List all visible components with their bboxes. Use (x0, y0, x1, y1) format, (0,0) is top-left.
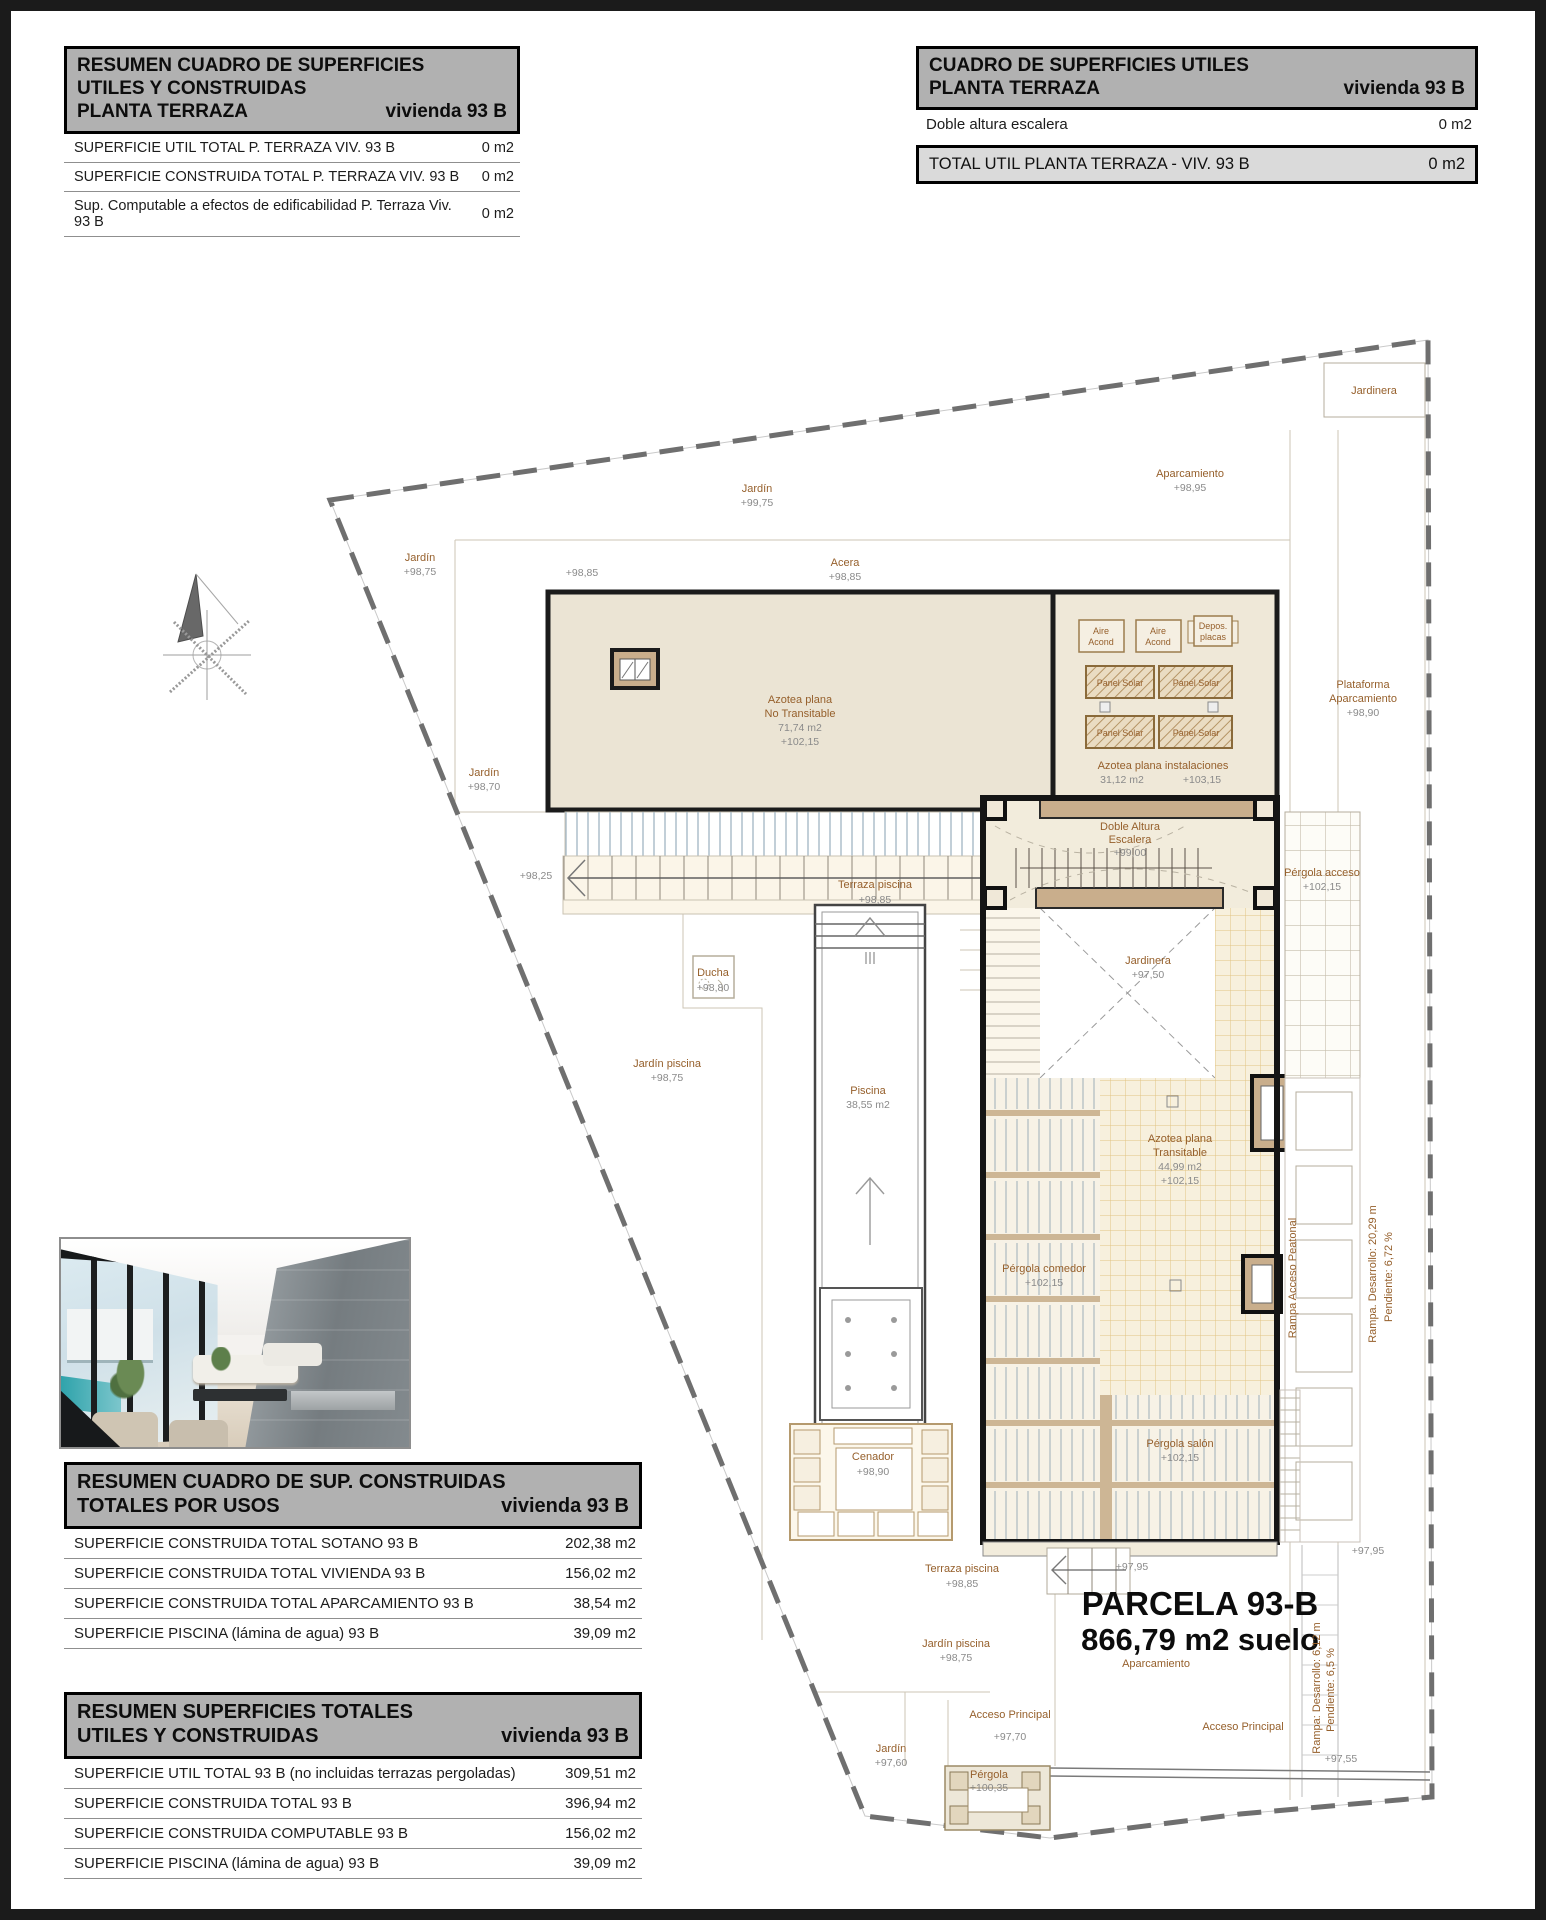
label-depos-placas: Depos. (1199, 621, 1228, 631)
north-compass-icon (163, 574, 251, 700)
label-level: +97,95 (1352, 1545, 1385, 1557)
table-resumen-construidas-usos: RESUMEN CUADRO DE SUP. CONSTRUIDAS TOTAL… (64, 1462, 642, 1649)
label-acceso-principal: Acceso Principal (969, 1709, 1050, 1721)
svg-text:38,55 m2: 38,55 m2 (846, 1099, 890, 1111)
svg-text:+102,15: +102,15 (1025, 1277, 1063, 1289)
svg-text:Acond: Acond (1088, 637, 1114, 647)
label-jardin-top: Jardín (742, 483, 773, 495)
label-ducha: Ducha (697, 967, 730, 979)
table-row: SUPERFICIE CONSTRUIDA TOTAL VIVIENDA 93 … (64, 1559, 642, 1589)
svg-text:Aparcamiento: Aparcamiento (1329, 693, 1397, 705)
table-total-row: TOTAL UTIL PLANTA TERRAZA - VIV. 93 B 0 … (916, 145, 1478, 184)
table-header: RESUMEN SUPERFICIES TOTALES UTILES Y CON… (64, 1692, 642, 1759)
table-title: RESUMEN CUADRO DE SUP. CONSTRUIDAS (77, 1470, 629, 1494)
interior-render-image (59, 1237, 411, 1449)
dining-pergola (983, 1078, 1100, 1542)
table-row: Doble altura escalera 0 m2 (916, 110, 1478, 139)
label-aparcamiento-top: Aparcamiento (1156, 468, 1224, 480)
label-pergola-acceso: Pérgola acceso (1284, 867, 1360, 879)
table-row: SUPERFICIE CONSTRUIDA TOTAL 93 B 396,94 … (64, 1789, 642, 1819)
label-level: +98,85 (566, 567, 599, 579)
label-jardinera-top: Jardinera (1351, 385, 1398, 397)
label-piscina: Piscina (850, 1085, 886, 1097)
label-azotea-transitable: Azotea plana (1148, 1133, 1213, 1145)
label-terraza-piscina: Terraza piscina (838, 879, 913, 891)
svg-text:+97,50: +97,50 (1132, 969, 1165, 981)
table-header: CUADRO DE SUPERFICIES UTILES PLANTA TERR… (916, 46, 1478, 110)
svg-text:44,99 m2: 44,99 m2 (1158, 1161, 1202, 1173)
label-jardin-bottom: Jardín (876, 1743, 907, 1755)
svg-text:+98,75: +98,75 (940, 1652, 973, 1664)
label-rampa-coches: Rampa. Desarrollo: 20,29 m (1367, 1205, 1379, 1343)
svg-text:71,74 m2: 71,74 m2 (778, 722, 822, 734)
roof-edge-pergola (563, 812, 1032, 914)
label-aparcamiento-bottom: Aparcamiento (1122, 1658, 1190, 1670)
label-azotea-no-transitable: Azotea plana (768, 694, 833, 706)
label-panel-solar: Panel Solar (1173, 678, 1220, 688)
svg-text:Escalera: Escalera (1109, 834, 1153, 846)
drawing-sheet: Jardín +99,75 Jardín +98,75 Acera +98,85… (0, 0, 1546, 1920)
label-acera: Acera (831, 557, 861, 569)
label-jardin-left: Jardín (405, 552, 436, 564)
svg-text:31,12 m2: 31,12 m2 (1100, 774, 1144, 786)
render-plant (110, 1360, 152, 1406)
spa-jacuzzi (820, 1288, 922, 1420)
label-azotea-instalaciones: Azotea plana instalaciones (1098, 760, 1229, 772)
table-title: RESUMEN CUADRO DE SUPERFICIES (77, 54, 507, 77)
svg-text:+97,70: +97,70 (994, 1731, 1027, 1743)
svg-text:+98,90: +98,90 (1347, 707, 1380, 719)
svg-text:+98,80: +98,80 (697, 982, 730, 994)
label-jardin-piscina-bottom: Jardín piscina (922, 1638, 991, 1650)
label-cenador: Cenador (852, 1451, 895, 1463)
svg-text:Pendiente: 6,72 %: Pendiente: 6,72 % (1383, 1232, 1395, 1322)
svg-text:No Transitable: No Transitable (765, 708, 836, 720)
table-row: SUPERFICIE UTIL TOTAL 93 B (no incluidas… (64, 1759, 642, 1789)
air-conditioning-unit (1079, 620, 1124, 652)
dwelling-id: vivienda 93 B (386, 100, 507, 123)
table-row: Sup. Computable a efectos de edificabili… (64, 192, 520, 237)
label-level: +97,55 (1325, 1753, 1358, 1765)
label-panel-solar: Panel Solar (1097, 678, 1144, 688)
svg-text:+98,75: +98,75 (404, 566, 437, 578)
render-coffee-table (193, 1389, 287, 1401)
svg-text:+98,90: +98,90 (857, 1466, 890, 1478)
table-title: CUADRO DE SUPERFICIES UTILES (929, 54, 1465, 77)
access-pergola-grid (1285, 812, 1360, 1078)
table-row: SUPERFICIE CONSTRUIDA TOTAL SOTANO 93 B … (64, 1529, 642, 1559)
svg-text:+102,15: +102,15 (1161, 1452, 1199, 1464)
svg-text:+99,00: +99,00 (1114, 847, 1147, 859)
dwelling-id: vivienda 93 B (501, 1724, 629, 1748)
table-resumen-superficies-totales: RESUMEN SUPERFICIES TOTALES UTILES Y CON… (64, 1692, 642, 1879)
air-conditioning-unit (1136, 620, 1181, 652)
render-plant (207, 1347, 235, 1376)
table-row: SUPERFICIE PISCINA (lámina de agua) 93 B… (64, 1619, 642, 1649)
living-room-pergola (1100, 1395, 1277, 1542)
svg-text:+98,95: +98,95 (1174, 482, 1207, 494)
label-acceso-principal: Acceso Principal (1202, 1721, 1283, 1733)
label-doble-altura: Doble Altura (1100, 821, 1161, 833)
render-chair (169, 1420, 228, 1447)
table-title: RESUMEN SUPERFICIES TOTALES (77, 1700, 629, 1724)
table-cuadro-superficies-utiles: CUADRO DE SUPERFICIES UTILES PLANTA TERR… (916, 46, 1478, 184)
svg-text:+99,75: +99,75 (741, 497, 774, 509)
table-resumen-superficies-terraza: RESUMEN CUADRO DE SUPERFICIES UTILES Y C… (64, 46, 520, 237)
render-sofa (263, 1343, 322, 1366)
label-plataforma: Plataforma (1336, 679, 1390, 691)
gazebo-cenador (790, 1424, 952, 1540)
label-aire-acond: Aire (1093, 626, 1109, 636)
svg-text:+103,15: +103,15 (1183, 774, 1221, 786)
label-rampa-acceso: Rampa: Desarrollo: 6,12 m (1311, 1622, 1323, 1753)
label-level: +98,25 (520, 870, 553, 882)
dwelling-id: vivienda 93 B (1344, 77, 1465, 100)
label-parcela-title: PARCELA 93-B (1082, 1585, 1319, 1622)
label-rampa-peatonal: Rampa Acceso Peatonal (1287, 1218, 1299, 1338)
label-aire-acond: Aire (1150, 626, 1166, 636)
table-row: SUPERFICIE PISCINA (lámina de agua) 93 B… (64, 1849, 642, 1879)
label-pergola-comedor: Pérgola comedor (1002, 1263, 1086, 1275)
svg-text:Pendiente: 6,5 %: Pendiente: 6,5 % (1325, 1648, 1337, 1732)
svg-text:+97,60: +97,60 (875, 1757, 908, 1769)
label-panel-solar: Panel Solar (1173, 728, 1220, 738)
svg-text:placas: placas (1200, 632, 1227, 642)
svg-text:+98,85: +98,85 (946, 1578, 979, 1590)
label-level: +97,95 (1116, 1561, 1149, 1573)
dwelling-id: vivienda 93 B (501, 1494, 629, 1518)
swimming-pool (815, 905, 925, 1442)
label-terraza-piscina-bottom: Terraza piscina (925, 1563, 1000, 1575)
label-jardinera-mid: Jardinera (1125, 955, 1172, 967)
label-pergola-salon: Pérgola salón (1146, 1438, 1213, 1450)
label-jardin-piscina: Jardín piscina (633, 1058, 702, 1070)
table-row: SUPERFICIE UTIL TOTAL P. TERRAZA VIV. 93… (64, 134, 520, 163)
render-fireplace-ledge (291, 1391, 395, 1410)
table-header: RESUMEN CUADRO DE SUP. CONSTRUIDAS TOTAL… (64, 1462, 642, 1529)
label-panel-solar: Panel Solar (1097, 728, 1144, 738)
table-row: SUPERFICIE CONSTRUIDA COMPUTABLE 93 B 15… (64, 1819, 642, 1849)
table-row: SUPERFICIE CONSTRUIDA TOTAL P. TERRAZA V… (64, 163, 520, 192)
svg-text:+98,85: +98,85 (829, 571, 862, 583)
svg-text:Transitable: Transitable (1153, 1147, 1207, 1159)
svg-text:+102,15: +102,15 (1161, 1175, 1199, 1187)
label-pergola-bottom: Pérgola (970, 1769, 1009, 1781)
table-header: RESUMEN CUADRO DE SUPERFICIES UTILES Y C… (64, 46, 520, 134)
svg-text:Acond: Acond (1145, 637, 1171, 647)
svg-text:+100,35: +100,35 (970, 1782, 1008, 1794)
main-building (983, 798, 1292, 1556)
label-parcela-area: 866,79 m2 suelo (1081, 1622, 1319, 1657)
svg-text:+98,70: +98,70 (468, 781, 501, 793)
table-row: SUPERFICIE CONSTRUIDA TOTAL APARCAMIENTO… (64, 1589, 642, 1619)
svg-text:+98,75: +98,75 (651, 1072, 684, 1084)
label-jardin-left2: Jardín (469, 767, 500, 779)
svg-text:+98,85: +98,85 (859, 894, 892, 906)
svg-text:+102,15: +102,15 (781, 736, 819, 748)
svg-text:+102,15: +102,15 (1303, 881, 1341, 893)
